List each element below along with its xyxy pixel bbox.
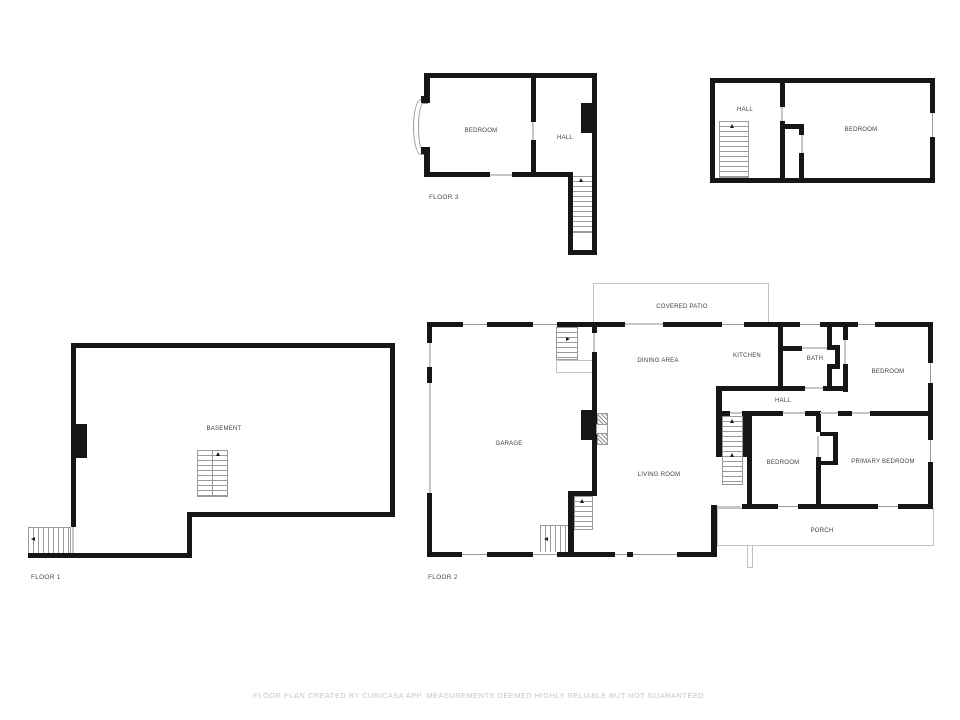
floor-2-window xyxy=(878,504,898,509)
room-label-covered-patio: COVERED PATIO xyxy=(656,304,708,310)
floor-2-stair-arrow xyxy=(544,537,548,541)
floor-3-left-door-opening xyxy=(490,174,512,176)
floor-2-stair-arrow xyxy=(730,453,734,457)
floor-2-stairs xyxy=(556,327,578,360)
floor-2-wall xyxy=(711,505,717,557)
floor-3-left-wall xyxy=(421,96,430,103)
floor-3-right-wall xyxy=(710,78,935,83)
floor-3-right-wall xyxy=(710,78,715,183)
floor-2-window xyxy=(858,322,875,327)
floor-2-outline xyxy=(556,360,594,373)
floor-3-right-stair-arrow xyxy=(730,124,734,128)
floor-2-wall xyxy=(663,322,722,327)
floor-2-wall xyxy=(928,462,933,509)
floor-3-right-stairs xyxy=(719,121,749,178)
floor-2-wall xyxy=(820,461,838,465)
floor-2-window xyxy=(462,552,487,557)
floor-2-wall xyxy=(427,552,462,557)
floor-2-wall xyxy=(843,322,848,340)
floor-2-wall xyxy=(427,322,432,343)
floor-2-wall xyxy=(798,504,878,509)
room-label-bedroom-top: BEDROOM xyxy=(872,369,905,375)
floor-2-door-opening xyxy=(805,387,823,389)
floor-2-stair-arrow xyxy=(580,499,584,503)
floor-3-left-wall xyxy=(568,250,597,255)
floor-2-wall xyxy=(427,367,432,383)
floor-1-stair-arrow xyxy=(31,537,35,541)
floor-2-window xyxy=(800,322,820,327)
floor-2-fireplace-hatch xyxy=(597,433,608,445)
floor-2-door-opening xyxy=(783,412,805,414)
floor-3-left-bay-window xyxy=(418,103,428,151)
floor-2-stairs xyxy=(722,416,743,485)
floor-3-left-wall xyxy=(531,77,536,122)
floor-2-door-opening xyxy=(817,436,819,457)
floor-2-wall xyxy=(557,322,625,327)
floor-2-stair-arrow xyxy=(730,419,734,423)
floor-2-door-opening xyxy=(820,412,838,414)
room-label-f3-hall: HALL xyxy=(557,135,573,141)
floor-1-stairs xyxy=(197,450,213,497)
floor-1-stairs xyxy=(212,450,228,497)
floor-2-door-opening xyxy=(429,343,431,367)
floor-3-left-wall xyxy=(512,172,570,177)
floor-3-left-wall xyxy=(531,140,536,177)
room-label-porch: PORCH xyxy=(811,528,834,534)
room-label-kitchen: KITCHEN xyxy=(733,353,761,359)
floor-3-right-door-opening xyxy=(781,107,783,121)
floor-3-left-wall xyxy=(568,172,573,255)
floor-2-window xyxy=(778,504,798,509)
floor-1-door-opening xyxy=(72,527,74,553)
floor-3-right-door-opening xyxy=(801,135,803,153)
floor-3-right-window xyxy=(930,113,935,137)
floor-2-window xyxy=(928,363,933,383)
floor-2-door-opening xyxy=(852,412,870,414)
floor-2-window xyxy=(615,552,677,557)
floor-1-wall xyxy=(28,553,192,558)
floor-2-wall xyxy=(427,322,463,327)
floor-3-right-wall xyxy=(930,78,935,113)
floor-3-left-wall xyxy=(424,172,490,177)
floor-2-wall xyxy=(627,552,633,557)
floor-2-door-opening xyxy=(593,333,595,352)
floor-2-wall xyxy=(744,322,800,327)
floor-2-wall xyxy=(870,411,933,416)
room-label-basement: BASEMENT xyxy=(207,426,242,432)
room-label-dining-area: DINING AREA xyxy=(637,358,678,364)
floor-3-right-wall xyxy=(930,137,935,183)
floor-2-wall xyxy=(928,322,933,363)
floor-2-door-opening xyxy=(730,412,742,414)
floor-3-left-stairs xyxy=(572,176,593,233)
floor-3-left-wall xyxy=(424,73,597,78)
room-label-f3b-hall: HALL xyxy=(737,107,753,113)
floor-2-door-opening xyxy=(717,506,741,508)
floor-3-right-wall xyxy=(780,83,785,107)
floor-1-wall xyxy=(390,343,395,517)
room-label-living-room: LIVING ROOM xyxy=(638,472,681,478)
room-label-f3b-bedroom: BEDROOM xyxy=(845,127,878,133)
floor-plan-canvas: FLOOR PLAN CREATED BY CUBICASA APP. MEAS… xyxy=(0,0,960,720)
floor-2-wall xyxy=(427,493,432,557)
floor-3-right-wall xyxy=(799,124,804,135)
floor-3-left-label: FLOOR 3 xyxy=(429,194,459,201)
floor-2-wall xyxy=(816,411,821,432)
floor-2-door-opening xyxy=(625,323,663,325)
floor-2-wall xyxy=(487,552,533,557)
room-label-garage: GARAGE xyxy=(495,441,522,447)
floor-2-wall xyxy=(717,386,805,391)
floor-2-wall xyxy=(487,322,533,327)
floor-2-wall xyxy=(778,322,783,391)
floor-1-wall xyxy=(71,343,395,348)
floor-3-left-stair-arrow xyxy=(579,178,583,182)
room-label-f3-bedroom: BEDROOM xyxy=(465,128,498,134)
floor-3-left-wall xyxy=(592,73,597,255)
room-label-bath: BATH xyxy=(807,356,824,362)
floor-2-outline xyxy=(747,545,753,568)
floor-2-window xyxy=(928,440,933,462)
room-label-primary-bedroom: PRIMARY BEDROOM xyxy=(851,459,914,465)
floor-2-outline xyxy=(717,508,934,546)
floor-2-wall xyxy=(557,552,615,557)
floor-2-door-opening xyxy=(429,383,431,493)
floor-1-wall xyxy=(187,512,395,517)
floor-2-wall xyxy=(581,410,593,440)
floor-3-right-wall xyxy=(799,153,804,178)
floor-2-wall xyxy=(875,322,933,327)
floor-2-wall xyxy=(823,386,848,391)
floor-1-label: FLOOR 1 xyxy=(31,574,61,581)
floor-2-wall xyxy=(778,346,802,351)
floor-1-stair-arrow xyxy=(216,452,220,456)
floor-2-firebox xyxy=(596,424,608,434)
floor-2-door-opening xyxy=(802,347,827,349)
floor-1-wall xyxy=(71,424,87,458)
floor-1-wall xyxy=(187,512,192,558)
floor-2-window xyxy=(463,322,487,327)
floor-2-wall xyxy=(838,411,852,416)
floor-2-window xyxy=(533,322,557,327)
floor-2-wall xyxy=(747,411,752,505)
floor-2-stair-arrow xyxy=(566,337,570,341)
floor-2-label: FLOOR 2 xyxy=(428,574,458,581)
floor-2-door-opening xyxy=(844,340,846,364)
floor-2-window xyxy=(722,322,744,327)
floor-3-right-wall xyxy=(780,121,785,178)
disclaimer-text: FLOOR PLAN CREATED BY CUBICASA APP. MEAS… xyxy=(253,691,706,700)
floor-2-wall xyxy=(568,491,574,557)
floor-2-wall xyxy=(716,386,722,457)
floor-3-left-door-opening xyxy=(532,122,534,140)
floor-2-wall xyxy=(820,322,858,327)
floor-3-right-wall xyxy=(710,178,935,183)
floor-3-left-wall xyxy=(581,103,593,133)
floor-2-window xyxy=(533,552,557,557)
room-label-hall: HALL xyxy=(775,398,791,404)
room-label-bedroom-mid: BEDROOM xyxy=(767,460,800,466)
